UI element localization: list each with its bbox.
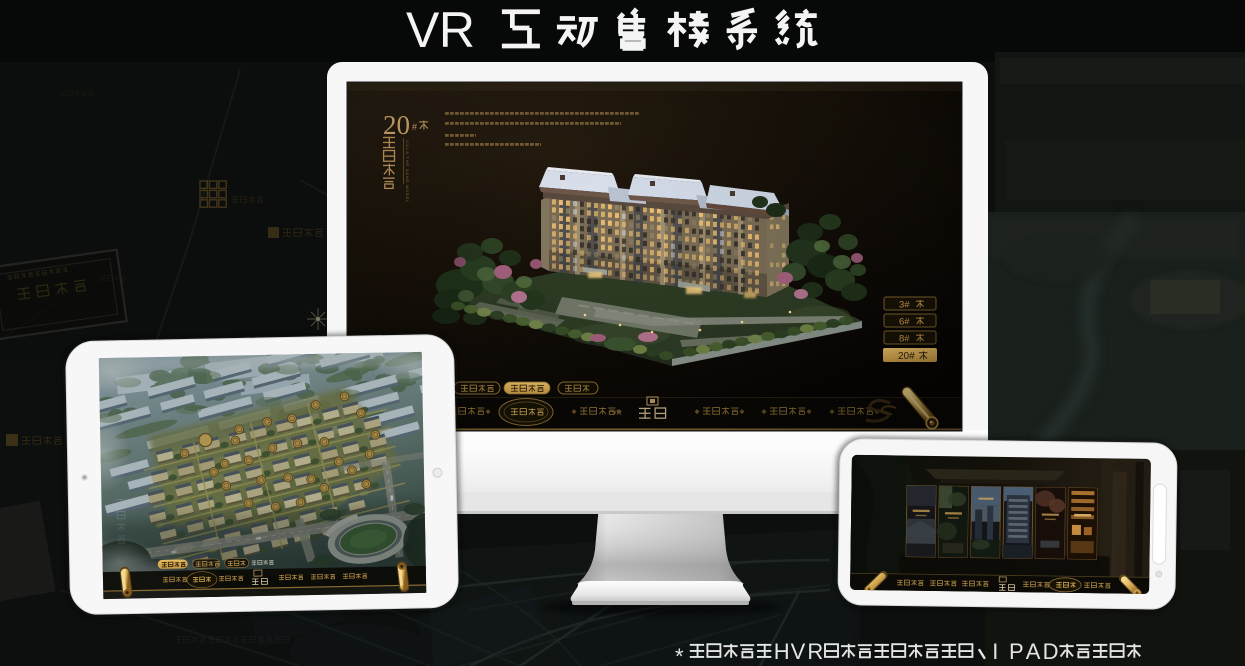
svg-text:D: D (1043, 639, 1059, 664)
svg-text:A: A (1026, 639, 1041, 664)
svg-text:R: R (807, 639, 823, 664)
svg-text:*: * (675, 644, 684, 666)
svg-text:I: I (992, 639, 998, 664)
svg-text:H: H (774, 639, 790, 664)
svg-text:P: P (1009, 639, 1024, 664)
svg-text:VR: VR (406, 2, 480, 58)
svg-text:V: V (791, 639, 806, 664)
